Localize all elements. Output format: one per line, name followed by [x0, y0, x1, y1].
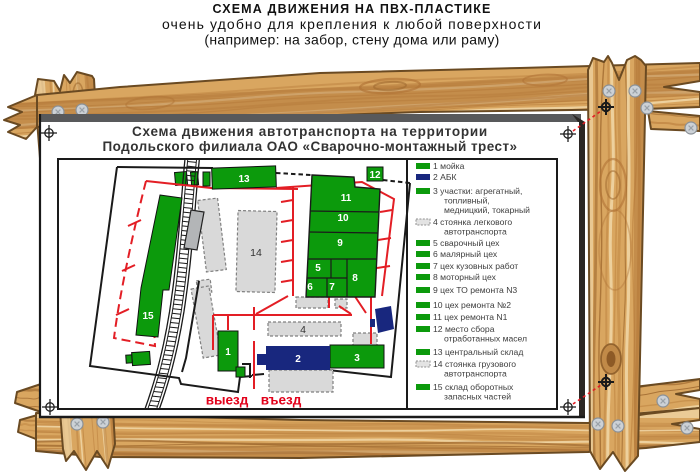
- svg-text:Подольского филиала ОАО «Сваро: Подольского филиала ОАО «Сварочно-монтаж…: [103, 139, 518, 154]
- svg-text:медницкий, токарный: медницкий, токарный: [444, 205, 530, 215]
- svg-text:автотранспорта: автотранспорта: [444, 369, 507, 379]
- svg-text:автотранспорта: автотранспорта: [444, 227, 507, 237]
- svg-text:11: 11: [341, 193, 352, 204]
- svg-text:7 цех кузовных работ: 7 цех кузовных работ: [433, 261, 518, 271]
- svg-text:10 цех ремонта №2: 10 цех ремонта №2: [433, 300, 511, 310]
- svg-text:11 цех ремонта N1: 11 цех ремонта N1: [433, 312, 508, 322]
- svg-text:12 место сбора: 12 место сбора: [433, 324, 495, 334]
- svg-text:топливный,: топливный,: [444, 196, 490, 206]
- svg-text:8: 8: [352, 273, 358, 284]
- svg-text:2 АБК: 2 АБК: [433, 172, 457, 182]
- svg-text:выезд: выезд: [206, 393, 249, 408]
- svg-text:6: 6: [307, 282, 313, 293]
- svg-text:СХЕМА ДВИЖЕНИЯ НА ПВХ-ПЛАСТИКЕ: СХЕМА ДВИЖЕНИЯ НА ПВХ-ПЛАСТИКЕ: [213, 2, 492, 16]
- svg-text:Схема движения автотранспорта: Схема движения автотранспорта на террито…: [132, 124, 488, 139]
- svg-text:4: 4: [300, 324, 306, 336]
- svg-text:5 сварочный цех: 5 сварочный цех: [433, 238, 500, 248]
- svg-text:15 склад оборотных: 15 склад оборотных: [433, 382, 514, 392]
- svg-text:8 моторный цех: 8 моторный цех: [433, 272, 497, 282]
- svg-text:2: 2: [295, 354, 301, 365]
- svg-text:7: 7: [329, 282, 335, 293]
- svg-text:3 участки: агрегатный,: 3 участки: агрегатный,: [433, 186, 522, 196]
- svg-text:1: 1: [225, 347, 231, 358]
- svg-text:12: 12: [369, 170, 381, 181]
- svg-text:очень удобно для крепления к л: очень удобно для крепления к любой повер…: [162, 16, 542, 32]
- svg-text:15: 15: [142, 311, 154, 322]
- svg-text:отработанных масел: отработанных масел: [444, 334, 527, 344]
- svg-text:1 мойка: 1 мойка: [433, 161, 465, 171]
- svg-text:6 малярный цех: 6 малярный цех: [433, 249, 498, 259]
- svg-text:въезд: въезд: [261, 393, 302, 408]
- svg-text:10: 10: [337, 213, 349, 224]
- svg-text:13 центральный склад: 13 центральный склад: [433, 347, 523, 357]
- svg-text:14: 14: [250, 247, 262, 259]
- svg-text:14 стоянка грузового: 14 стоянка грузового: [433, 359, 516, 369]
- svg-text:5: 5: [315, 263, 321, 274]
- svg-text:4 стоянка легкового: 4 стоянка легкового: [433, 217, 512, 227]
- svg-text:запасных частей: запасных частей: [444, 392, 511, 402]
- svg-text:9: 9: [337, 238, 343, 249]
- svg-text:13: 13: [238, 174, 250, 185]
- svg-text:3: 3: [354, 353, 360, 364]
- svg-text:(например: на забор, стену дом: (например: на забор, стену дома или раму…: [204, 32, 499, 48]
- svg-text:9 цех ТО ремонта N3: 9 цех ТО ремонта N3: [433, 285, 517, 295]
